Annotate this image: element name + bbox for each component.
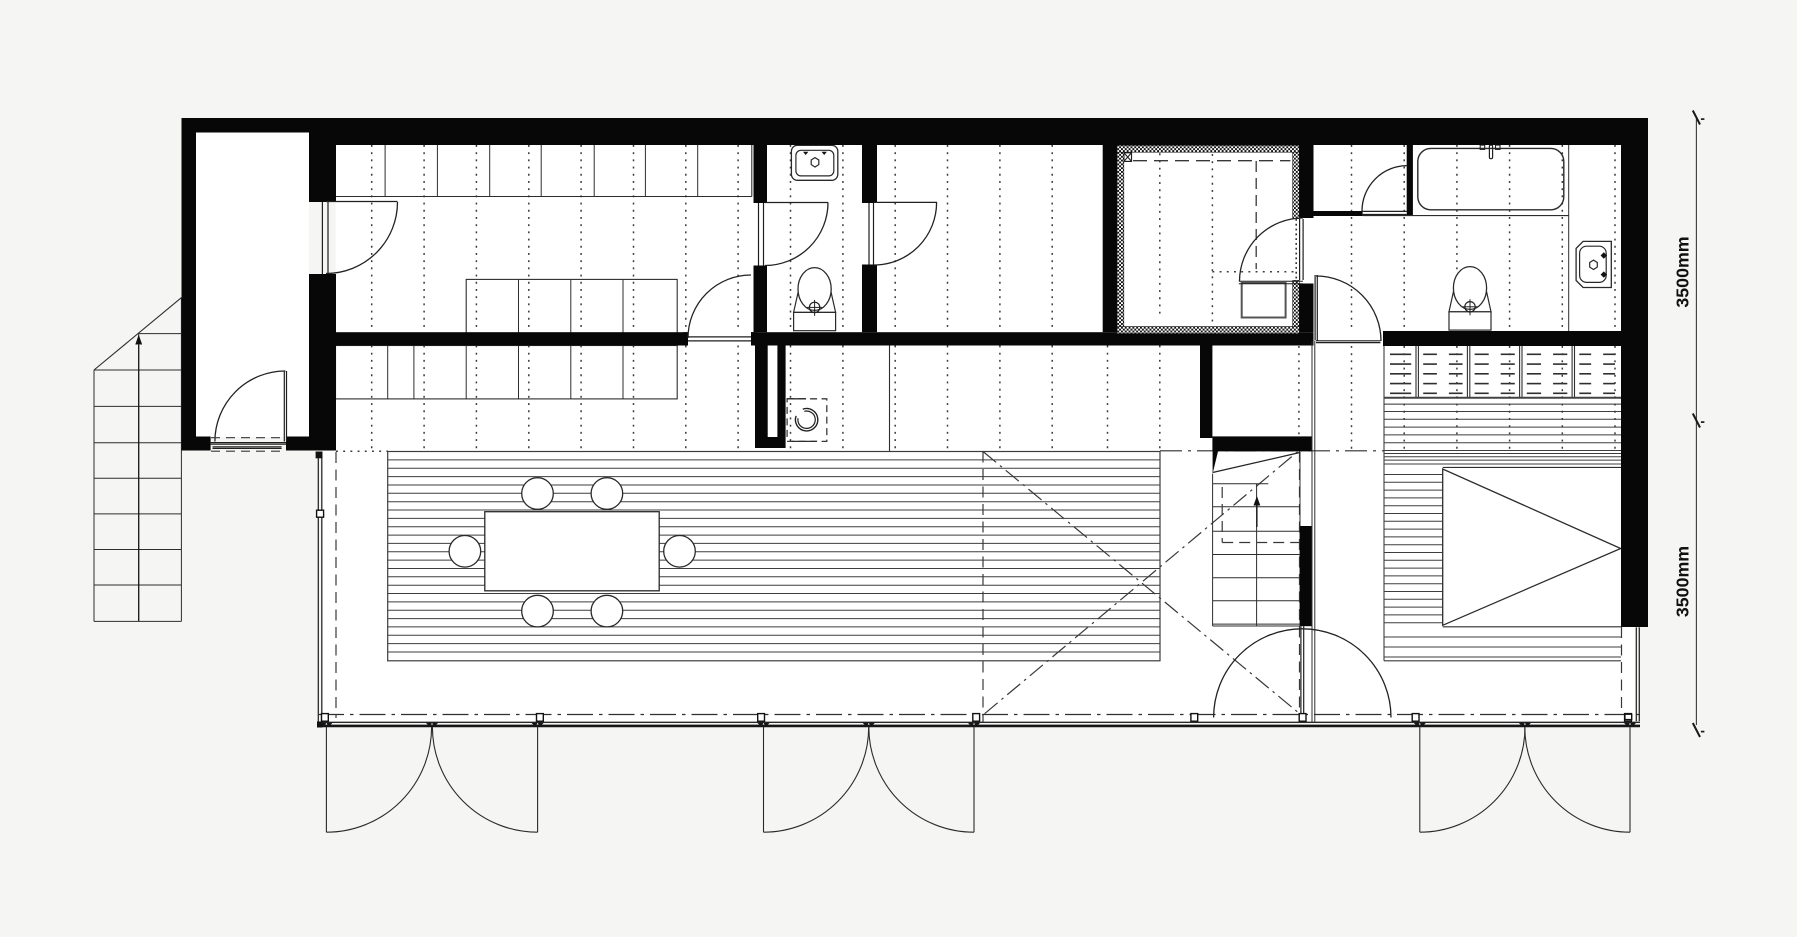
svg-text:3500mm: 3500mm (1673, 546, 1693, 617)
svg-text:3500mm: 3500mm (1673, 236, 1693, 307)
